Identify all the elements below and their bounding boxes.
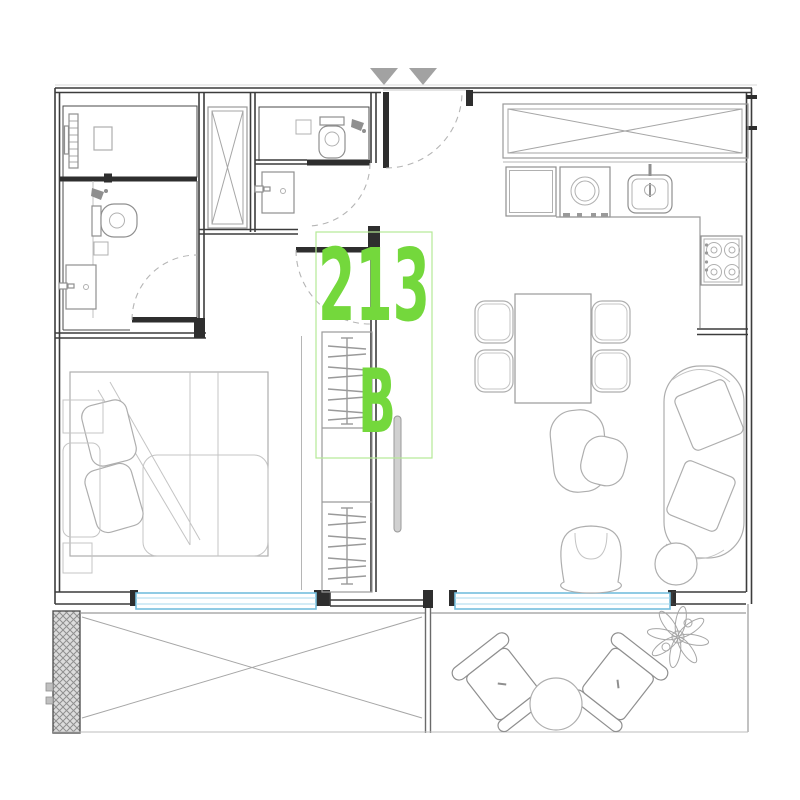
chair [592,301,630,343]
appliance-box [94,127,112,150]
hatched-wall [53,611,80,733]
entry-door-leaf [383,92,389,168]
fridge-icon [506,167,556,216]
bedroom [63,372,268,573]
plant-icon [647,606,710,669]
upper-cabinets [503,104,748,158]
vanity-sink-icon [59,265,96,309]
vanity-sink-icon [255,172,294,213]
kitchen [503,104,748,335]
unit-block: B [358,350,396,453]
floor-plan-svg: 213 B [0,0,800,800]
shower-head-icon [351,119,366,133]
bathroom2-door-swing [307,163,370,226]
round-table [530,678,582,730]
chair [592,350,630,392]
living-area [548,366,745,593]
armchair [561,526,622,593]
floor-plan: 213 B [0,0,800,800]
side-table [655,543,697,585]
chair [475,301,513,343]
bathroom1-door-swing [132,255,197,320]
entry-arrows [370,68,437,85]
shower-head-icon [91,188,108,200]
unit-label: 213 B [316,227,432,458]
sofa [664,366,745,559]
toilet-icon [92,204,137,237]
bedroom-window [136,593,316,609]
bathroom-1 [55,181,206,338]
living-room-window [455,593,670,609]
balcony-left [46,590,433,733]
unit-number: 213 [318,227,430,344]
bathroom-2 [255,93,376,227]
dining-table [515,294,591,403]
entry-door-swing [386,92,462,168]
outdoor-chair [567,630,671,736]
chair [475,350,513,392]
utility-panel [65,114,79,168]
down-triangle-icon [370,68,398,85]
gas-stove-icon [701,236,742,285]
dining-area [475,294,630,403]
washer-icon [560,167,610,217]
bin-icon [296,120,311,134]
bin-icon [94,242,108,255]
sink-icon [628,164,672,213]
toilet-icon [319,117,345,158]
bathroom1-door-leaf [132,317,197,323]
bathroom2-door-leaf [307,160,370,166]
hanger-rod [328,508,366,584]
down-triangle-icon [409,68,437,85]
